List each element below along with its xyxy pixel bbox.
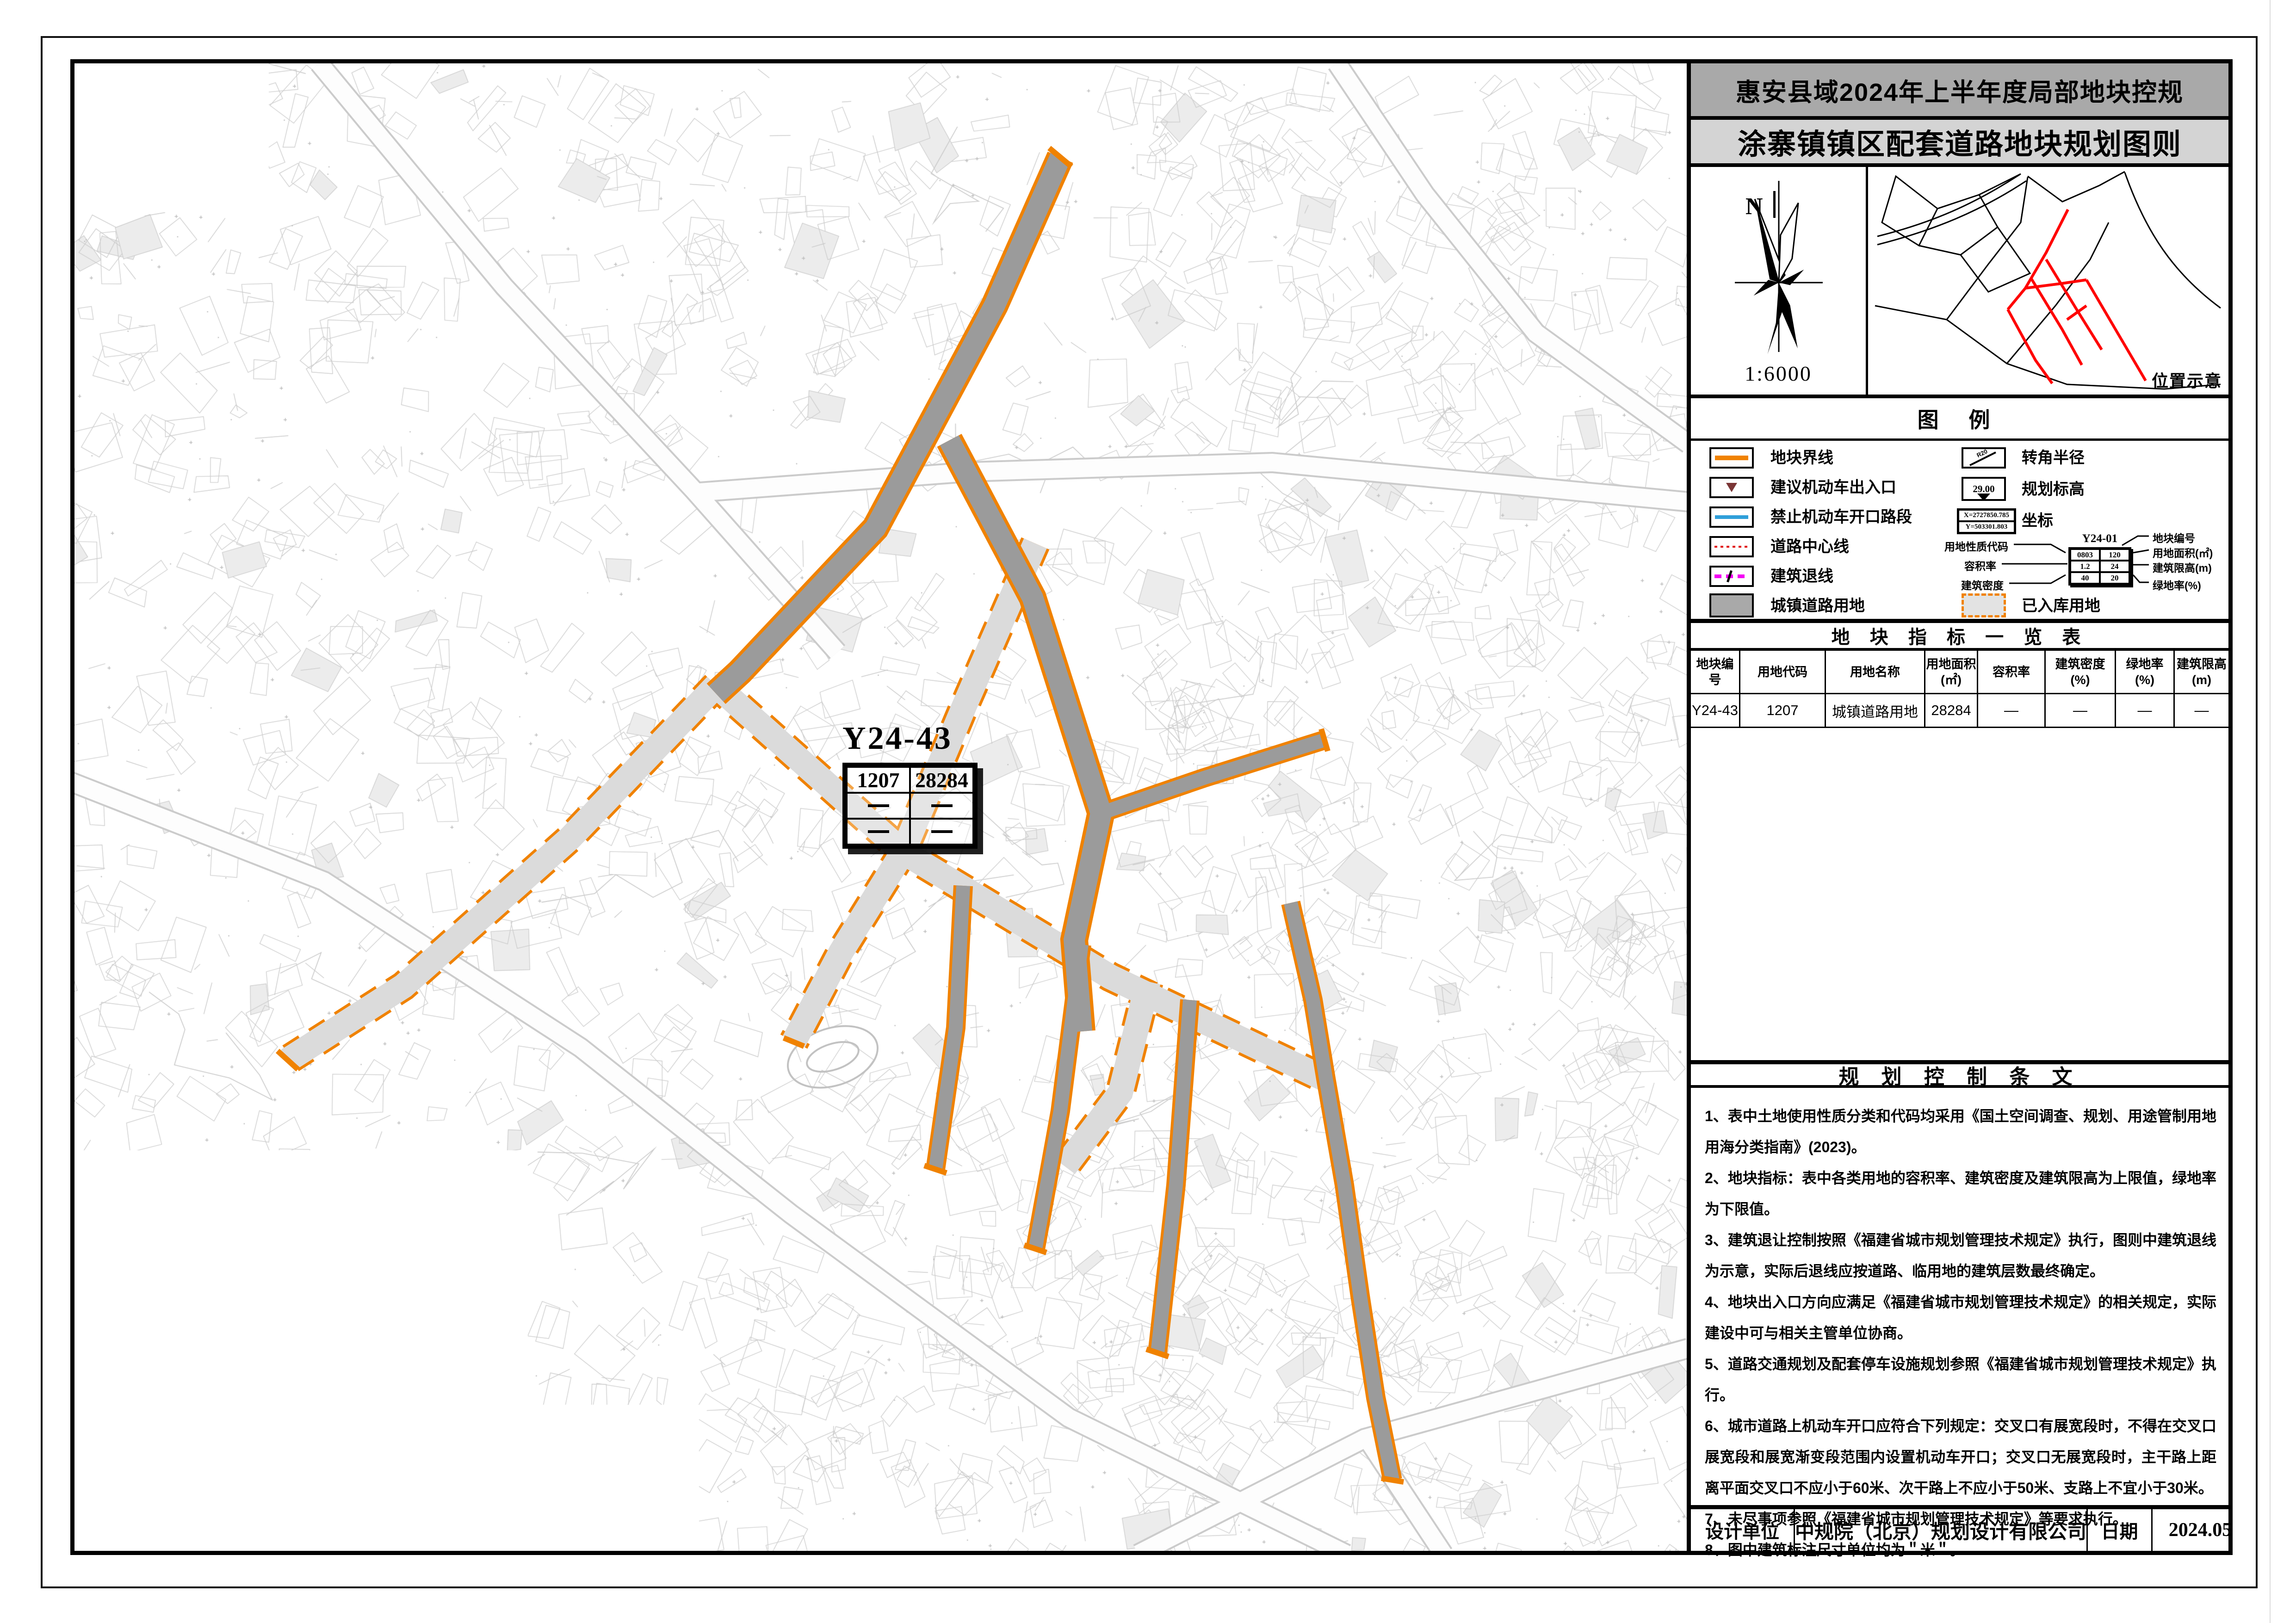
callout-land-code: 用地性质代码 [1944, 538, 2008, 554]
main-map[interactable]: Y24-43 1207 28284 [74, 63, 1687, 1551]
col-header: 地块编号 [1691, 651, 1740, 694]
legend: 地块界线 建议机动车出入口 禁止机动车开口路段 道路中心线 建筑退线 城镇道路用… [1691, 441, 2228, 623]
archived-road-boundaries [288, 543, 1324, 1166]
legend-label: 城镇道路用地 [1770, 595, 1865, 617]
vehicle-entry-icon [1726, 483, 1737, 492]
indicator-plot-no: Y24-01 [2068, 532, 2131, 545]
corner-radius-icon: R20 [1963, 449, 2004, 467]
compass-rose-icon [1691, 167, 1866, 361]
map-plot-number: Y24-43 [842, 720, 1055, 757]
callout-far: 容积率 [1964, 557, 1996, 573]
north-bar [1773, 191, 1776, 218]
table-cell: — [1978, 694, 2046, 727]
note-item: 1、表中土地使用性质分类和代码均采用《国土空间调查、规划、用途管制用地用海分类指… [1705, 1101, 2216, 1163]
north-label: N [1745, 193, 1763, 220]
map-plot-label: Y24-43 1207 28284 [842, 720, 1055, 849]
design-unit-value: 中规院（北京）规划设计有限公司 [1795, 1509, 2088, 1551]
legend-centerline-sample [1709, 536, 1754, 557]
legend-label: 坐标 [2022, 510, 2053, 531]
metrics-table: 地块编号 用地代码 用地名称 用地面积 (㎡) 容积率 建筑密度 (%) 绿地率… [1691, 651, 2228, 728]
callout-area: 用地面积(㎡) [2153, 544, 2213, 560]
location-inset-drawing [1868, 167, 2228, 392]
legend-plot-boundary-sample [1709, 447, 1754, 469]
legend-archived-sample [1962, 593, 2006, 617]
table-cell: — [2046, 694, 2116, 727]
map-plot-far [847, 793, 910, 819]
indicator-mini-table: 0803 120 1.2 24 40 20 [2068, 547, 2131, 586]
col-header: 用地名称 [1826, 651, 1925, 694]
mini-cell: 40 [2070, 572, 2100, 584]
legend-label: 已入库用地 [2022, 595, 2100, 617]
col-header: 容积率 [1978, 651, 2046, 694]
callout-plot-no: 地块编号 [2153, 530, 2195, 545]
mini-cell: 0803 [2070, 549, 2100, 561]
title-block: 设计单位 中规院（北京）规划设计有限公司 日期 2024.05 [1691, 1505, 2228, 1551]
legend-setback-sample [1709, 566, 1754, 587]
road-centerline-icon [1714, 546, 1749, 548]
col-header: 建筑限高 (m) [2175, 651, 2228, 694]
legend-corner-radius-sample: R20 [1962, 447, 2006, 469]
table-cell: — [2116, 694, 2175, 727]
design-unit-label: 设计单位 [1691, 1509, 1795, 1551]
building-setback-icon [1714, 574, 1749, 578]
col-header: 用地代码 [1740, 651, 1826, 694]
legend-label: 道路中心线 [1770, 536, 1849, 557]
date-label: 日期 [2088, 1509, 2153, 1551]
coordinate-x: X=2727850.785 [1958, 510, 2015, 521]
page-edge-line [2270, 0, 2271, 1623]
legend-vehicle-entry-sample [1709, 477, 1754, 498]
col-header: 建筑密度 (%) [2046, 651, 2116, 694]
table-cell: 1207 [1740, 694, 1826, 727]
plot-boundary-icon [1715, 456, 1748, 460]
legend-label: 规划标高 [2022, 479, 2085, 500]
legend-no-opening-sample [1709, 506, 1754, 528]
notes-title: 规 划 控 制 条 文 [1691, 1060, 2228, 1088]
info-panel: 惠安县域2024年上半年度局部地块控规 涂寨镇镇区配套道路地块规划图则 N [1687, 63, 2228, 1551]
map-plot-indicator-table: 1207 28284 [842, 763, 978, 849]
archived-roads [288, 543, 1324, 1166]
map-plot-density [847, 819, 910, 845]
no-opening-icon [1715, 515, 1748, 519]
table-cell: Y24-43 [1691, 694, 1740, 727]
planning-notes: 1、表中土地使用性质分类和代码均采用《国土空间调查、规划、用途管制用地用海分类指… [1691, 1088, 2228, 1505]
elevation-marker-icon [1977, 494, 1990, 501]
map-plot-land-code: 1207 [847, 767, 910, 793]
inset-caption: 位置示意 [2152, 368, 2222, 392]
table-cell: 28284 [1925, 694, 1978, 727]
note-item: 5、道路交通规划及配套停车设施规划参照《福建省城市规划管理技术规定》执行。 [1705, 1349, 2216, 1411]
col-header: 用地面积 (㎡) [1925, 651, 1978, 694]
indicator-diagram: 用地性质代码 容积率 建筑密度 Y24-01 0803 120 1.2 24 4… [1931, 531, 2228, 592]
note-item: 6、城市道路上机动车开口应符合下列规定：交叉口有展宽段时，不得在交叉口展宽段和展… [1705, 1411, 2216, 1504]
legend-label: 建议机动车出入口 [1770, 477, 1896, 498]
compass: N [1691, 167, 1866, 395]
compass-and-location: N [1691, 167, 2228, 398]
mini-cell: 1.2 [2070, 561, 2100, 572]
table-cell: 城镇道路用地 [1826, 694, 1925, 727]
elevation-value: 29.00 [1973, 483, 1994, 495]
drawing-frame: Y24-43 1207 28284 惠安县域2024年上半年度局部地块控规 涂寨… [70, 59, 2233, 1555]
mini-cell: 120 [2100, 549, 2129, 561]
mini-cell: 24 [2100, 561, 2129, 572]
location-inset-map[interactable]: 位置示意 [1866, 167, 2228, 395]
panel-spacer [1691, 728, 2228, 1060]
legend-label: 禁止机动车开口路段 [1770, 506, 1912, 528]
sheet-subtitle: 涂寨镇镇区配套道路地块规划图则 [1691, 120, 2228, 167]
inset-highlight-roads [2008, 210, 2146, 383]
note-item: 4、地块出入口方向应满足《福建省城市规划管理技术规定》的相关规定，实际建设中可与… [1705, 1287, 2216, 1349]
metrics-table-title: 地 块 指 标 一 览 表 [1691, 623, 2228, 651]
legend-elevation-sample: 29.00 [1962, 477, 2006, 501]
map-scale: 1:6000 [1691, 361, 1866, 386]
sheet-title: 惠安县域2024年上半年度局部地块控规 [1691, 63, 2228, 120]
callout-density: 建筑密度 [1961, 577, 2004, 592]
map-plot-height [910, 793, 973, 819]
callout-height: 建筑限高(m) [2153, 559, 2212, 575]
col-header: 绿地率 (%) [2116, 651, 2175, 694]
legend-urban-road-sample [1709, 593, 1754, 617]
map-plot-green [910, 819, 973, 845]
table-cell: — [2175, 694, 2228, 727]
note-item: 3、建筑退让控制按照《福建省城市规划管理技术规定》执行，图则中建筑退线为示意，实… [1705, 1225, 2216, 1287]
callout-green: 绿地率(%) [2153, 577, 2201, 592]
legend-label: 转角半径 [2022, 447, 2085, 469]
mini-cell: 20 [2100, 572, 2129, 584]
note-item: 2、地块指标：表中各类用地的容积率、建筑密度及建筑限高为上限值，绿地率为下限值。 [1705, 1163, 2216, 1225]
legend-coordinate-sample: X=2727850.785 Y=503301.803 [1957, 508, 2016, 534]
legend-label: 地块界线 [1770, 447, 1833, 469]
legend-label: 建筑退线 [1770, 566, 1833, 587]
date-value: 2024.05 [2153, 1509, 2248, 1551]
map-plot-area: 28284 [910, 767, 973, 793]
plot-boundary-caps [278, 148, 1404, 1482]
legend-title: 图 例 [1691, 398, 2228, 441]
